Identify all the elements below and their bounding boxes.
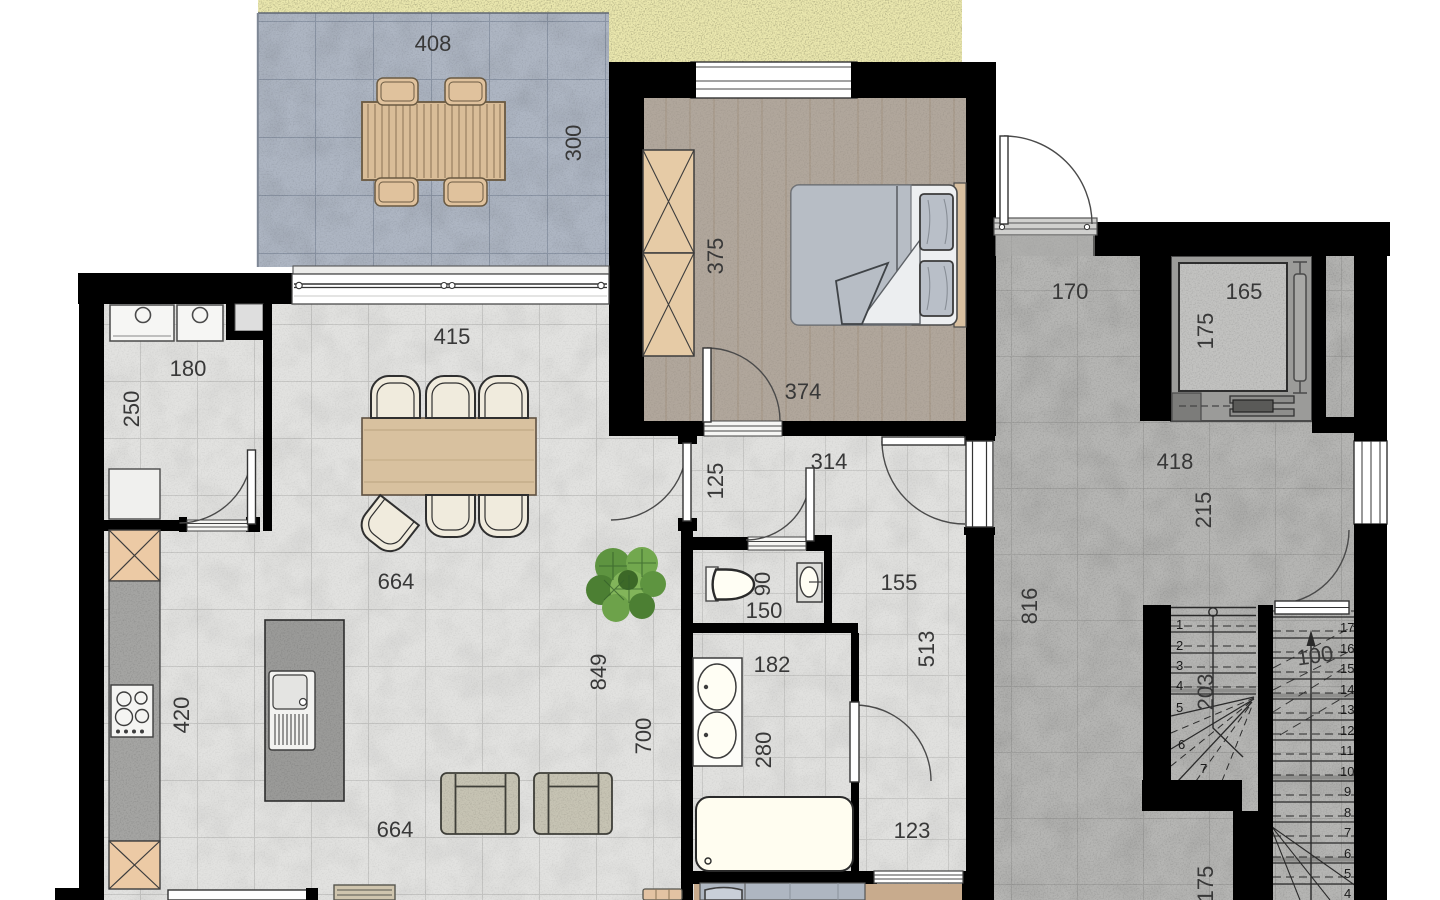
svg-text:374: 374	[785, 379, 822, 404]
svg-text:7: 7	[1344, 825, 1351, 840]
svg-text:182: 182	[754, 652, 791, 677]
svg-text:250: 250	[119, 391, 144, 428]
svg-text:13: 13	[1340, 702, 1354, 717]
svg-text:5: 5	[1344, 866, 1351, 881]
svg-text:175: 175	[1193, 866, 1218, 900]
svg-text:3: 3	[1176, 658, 1183, 673]
svg-text:150: 150	[746, 598, 783, 623]
svg-text:816: 816	[1017, 588, 1042, 625]
svg-text:170: 170	[1052, 279, 1089, 304]
svg-text:1: 1	[1176, 617, 1183, 632]
svg-text:5: 5	[1176, 700, 1183, 715]
svg-text:664: 664	[378, 569, 415, 594]
svg-text:165: 165	[1226, 279, 1263, 304]
svg-text:123: 123	[894, 818, 931, 843]
svg-text:280: 280	[751, 732, 776, 769]
svg-text:7: 7	[1200, 761, 1207, 776]
svg-text:4: 4	[1176, 678, 1183, 693]
svg-text:2: 2	[1176, 638, 1183, 653]
svg-text:418: 418	[1157, 449, 1194, 474]
svg-text:175: 175	[1193, 313, 1218, 350]
svg-text:155: 155	[881, 570, 918, 595]
svg-text:375: 375	[703, 238, 728, 275]
svg-text:100: 100	[1295, 641, 1335, 671]
svg-text:8: 8	[1344, 805, 1351, 820]
svg-text:700: 700	[631, 718, 656, 755]
svg-text:14: 14	[1340, 682, 1354, 697]
svg-text:11: 11	[1340, 743, 1354, 758]
svg-text:9: 9	[1344, 784, 1351, 799]
svg-text:513: 513	[914, 631, 939, 668]
svg-text:4: 4	[1344, 886, 1351, 900]
svg-text:420: 420	[169, 697, 194, 734]
svg-text:300: 300	[561, 125, 586, 162]
svg-text:415: 415	[434, 324, 471, 349]
svg-text:664: 664	[377, 817, 414, 842]
svg-text:125: 125	[703, 463, 728, 500]
svg-text:215: 215	[1191, 492, 1216, 529]
svg-text:203: 203	[1193, 674, 1218, 711]
svg-text:180: 180	[170, 356, 207, 381]
svg-text:90: 90	[750, 572, 775, 596]
svg-text:15: 15	[1340, 661, 1354, 676]
svg-text:10: 10	[1340, 764, 1354, 779]
svg-text:12: 12	[1340, 723, 1354, 738]
svg-text:849: 849	[586, 654, 611, 691]
svg-text:6: 6	[1344, 846, 1351, 861]
svg-text:408: 408	[415, 31, 452, 56]
svg-text:6: 6	[1178, 737, 1185, 752]
svg-text:17: 17	[1340, 620, 1354, 635]
svg-text:16: 16	[1340, 641, 1354, 656]
svg-text:314: 314	[811, 449, 848, 474]
